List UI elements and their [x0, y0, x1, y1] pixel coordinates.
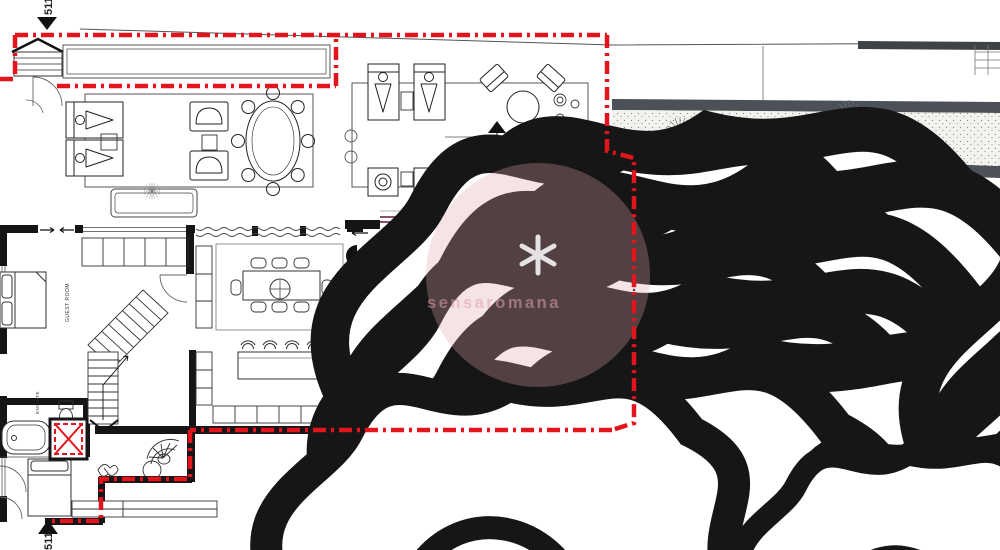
pool-area	[12, 39, 330, 113]
terrace-dining-table	[232, 87, 315, 196]
guest-bed	[0, 272, 46, 328]
bathtub	[2, 421, 50, 454]
wardrobe	[82, 238, 188, 266]
staircase	[88, 290, 168, 431]
terrace-armchair	[190, 102, 228, 131]
side-table	[401, 92, 413, 110]
watermark: sensaromana	[426, 163, 650, 387]
entrance-door-arc	[33, 77, 62, 106]
decor-sketch	[98, 464, 118, 476]
bench	[72, 501, 217, 517]
guest-room-label: GUEST ROOM	[65, 283, 71, 322]
roof-canopy	[12, 39, 63, 76]
street-area	[80, 29, 1000, 100]
sun-lounger	[66, 140, 123, 176]
marker-arrow-icon	[37, 17, 57, 30]
floorplan-svg: 8	[0, 0, 1000, 550]
dining-table	[243, 271, 320, 300]
sun-lounger	[414, 64, 445, 120]
guest-door-arc	[160, 275, 187, 302]
side-table	[202, 135, 217, 150]
sun-lounger	[368, 64, 399, 120]
terrace-armchair	[190, 151, 228, 180]
ensuite-label: ENSUITE	[35, 391, 40, 414]
level-marker-arrow	[488, 121, 506, 133]
marker-top-label: 511	[43, 0, 55, 15]
planter	[111, 183, 197, 217]
single-bed	[28, 459, 71, 516]
side-table	[401, 172, 413, 186]
window-lines	[83, 228, 186, 232]
bath-door-arc	[0, 466, 26, 492]
boundary-marker-top: 511	[37, 0, 57, 30]
lounge-chair	[368, 168, 398, 196]
floorplan-image: 8	[0, 0, 1000, 550]
garden-door-arc	[26, 100, 43, 113]
kitchen-island	[238, 352, 323, 379]
boundary-left	[0, 35, 15, 79]
lap-pool	[63, 45, 330, 78]
fan-chair	[147, 439, 179, 464]
glazing-squiggle	[196, 228, 340, 231]
bar-stools	[241, 341, 321, 349]
bistro-table	[479, 64, 565, 123]
marker-bottom-label: 511	[43, 532, 55, 550]
sun-lounger	[66, 102, 123, 138]
road-curb-bar	[858, 41, 1000, 50]
watermark-text: sensaromana	[427, 294, 561, 312]
shower	[50, 419, 87, 459]
